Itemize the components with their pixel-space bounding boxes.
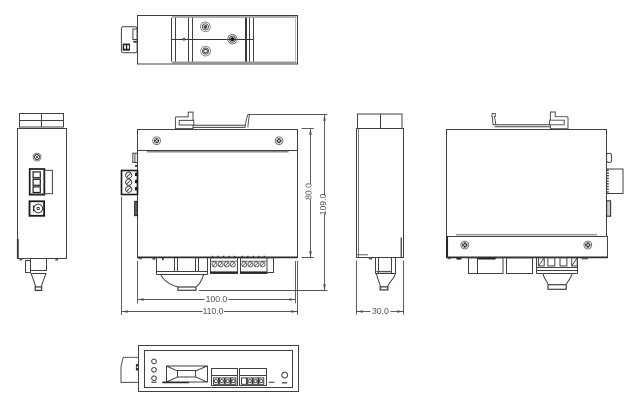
svg-text:30.0: 30.0 — [372, 306, 389, 316]
svg-text:110.0: 110.0 — [203, 306, 224, 316]
svg-text:109.0: 109.0 — [318, 194, 328, 216]
svg-text:100.0: 100.0 — [206, 294, 228, 304]
svg-text:80.0: 80.0 — [304, 183, 314, 200]
